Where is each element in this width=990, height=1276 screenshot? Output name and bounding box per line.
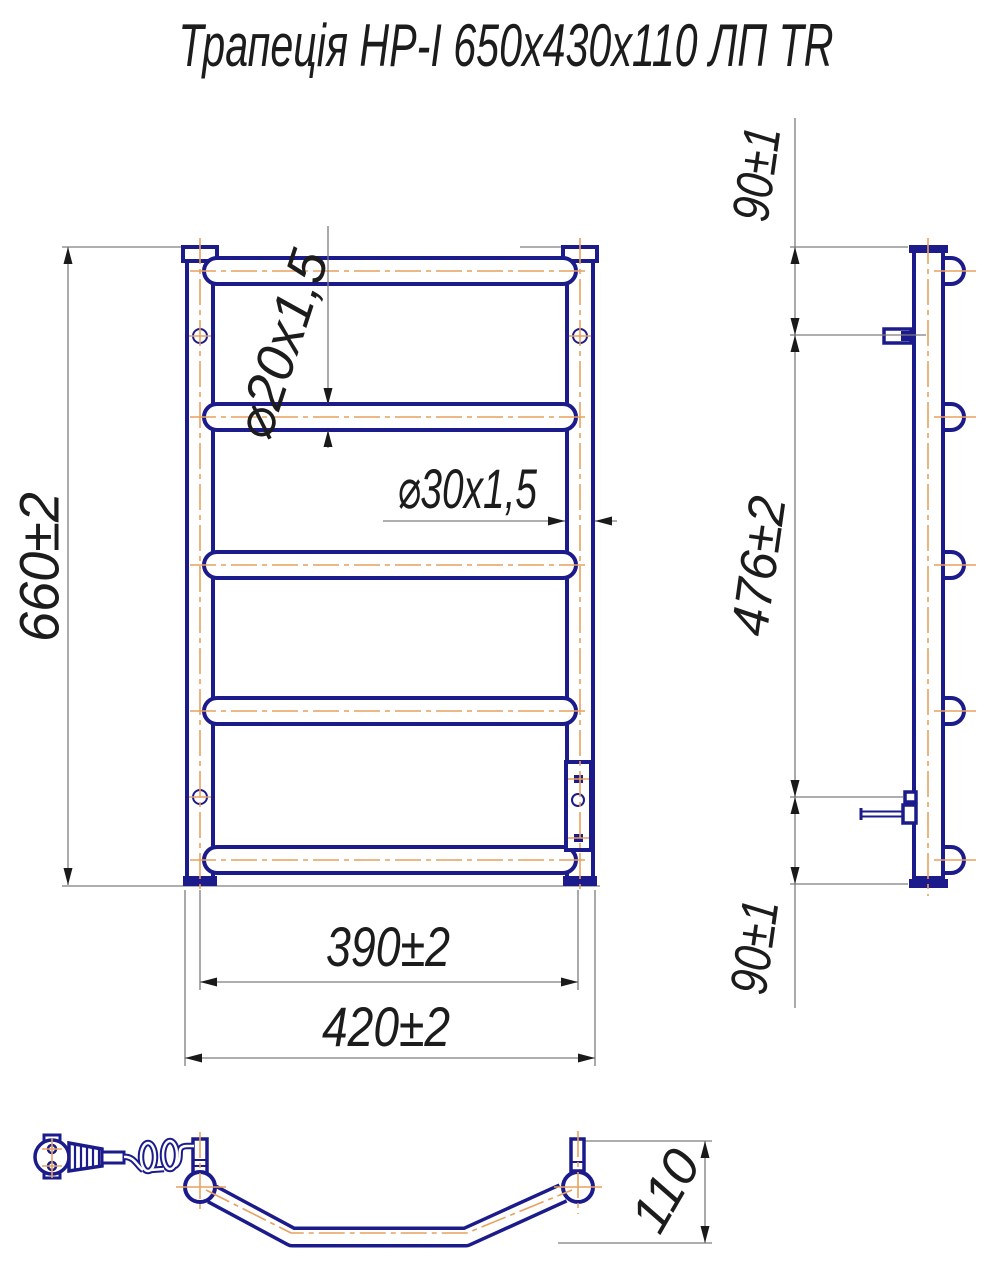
dim-height: 660±2 xyxy=(7,492,70,642)
dim-rung-span: 390±2 xyxy=(326,915,450,978)
dim-depth: 110 xyxy=(620,1140,713,1243)
plan-view xyxy=(35,1135,593,1237)
front-view xyxy=(183,247,597,886)
technical-drawing-canvas: Трапеція НР-І 650х430х110 ЛП TR 660±2 ⌀2… xyxy=(0,0,990,1276)
coiled-cable xyxy=(124,1141,194,1171)
dim-collector-diameter: ⌀30х1,5 xyxy=(397,457,538,520)
side-view xyxy=(860,245,964,888)
dimension-arrows xyxy=(64,247,800,1243)
cable-gland xyxy=(903,805,916,823)
dim-overall-width: 420±2 xyxy=(322,995,450,1058)
drawing-title: Трапеція НР-І 650х430х110 ЛП TR xyxy=(179,12,834,79)
dim-bottom-bracket-offset: 90±1 xyxy=(720,896,791,998)
wall-bracket-top-knob xyxy=(901,331,910,341)
plug-neck xyxy=(102,1152,124,1163)
centerlines xyxy=(42,238,976,1233)
dim-bracket-span: 476±2 xyxy=(721,493,798,640)
dim-top-bracket-offset: 90±1 xyxy=(722,123,793,225)
wall-bracket-bottom xyxy=(905,792,916,802)
towel-rail-drawing: Трапеція НР-І 650х430х110 ЛП TR 660±2 ⌀2… xyxy=(0,0,990,1276)
